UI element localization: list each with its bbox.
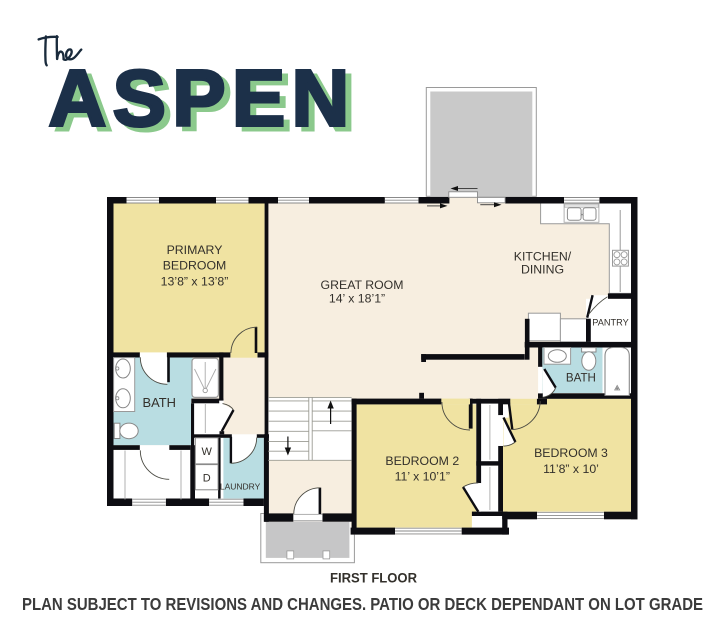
svg-text:PLAN SUBJECT TO REVISIONS AND: PLAN SUBJECT TO REVISIONS AND CHANGES. P… [22,594,703,614]
svg-text:BEDROOM 3: BEDROOM 3 [534,446,608,460]
svg-text:FIRST FLOOR: FIRST FLOOR [330,571,417,586]
svg-text:D: D [203,472,211,484]
svg-text:DINING: DINING [521,263,564,277]
svg-text:PRIMARY: PRIMARY [167,243,223,257]
svg-text:11’ x 10’1”: 11’ x 10’1” [395,470,450,484]
svg-text:PANTRY: PANTRY [592,318,628,328]
svg-text:13’8” x 13’8”: 13’8” x 13’8” [161,275,229,289]
svg-text:W: W [202,446,213,458]
svg-text:GREAT ROOM: GREAT ROOM [321,278,404,292]
svg-text:14’ x 18’1”: 14’ x 18’1” [329,292,385,306]
svg-text:11’8” x 10’: 11’8” x 10’ [543,462,599,476]
svg-text:KITCHEN/: KITCHEN/ [514,250,572,264]
svg-text:BATH: BATH [142,395,175,410]
svg-text:BEDROOM: BEDROOM [163,259,227,273]
svg-text:BEDROOM 2: BEDROOM 2 [385,454,459,468]
svg-text:BATH: BATH [566,372,596,385]
svg-text:ASPEN: ASPEN [49,54,356,143]
svg-text:LAUNDRY: LAUNDRY [220,482,261,492]
